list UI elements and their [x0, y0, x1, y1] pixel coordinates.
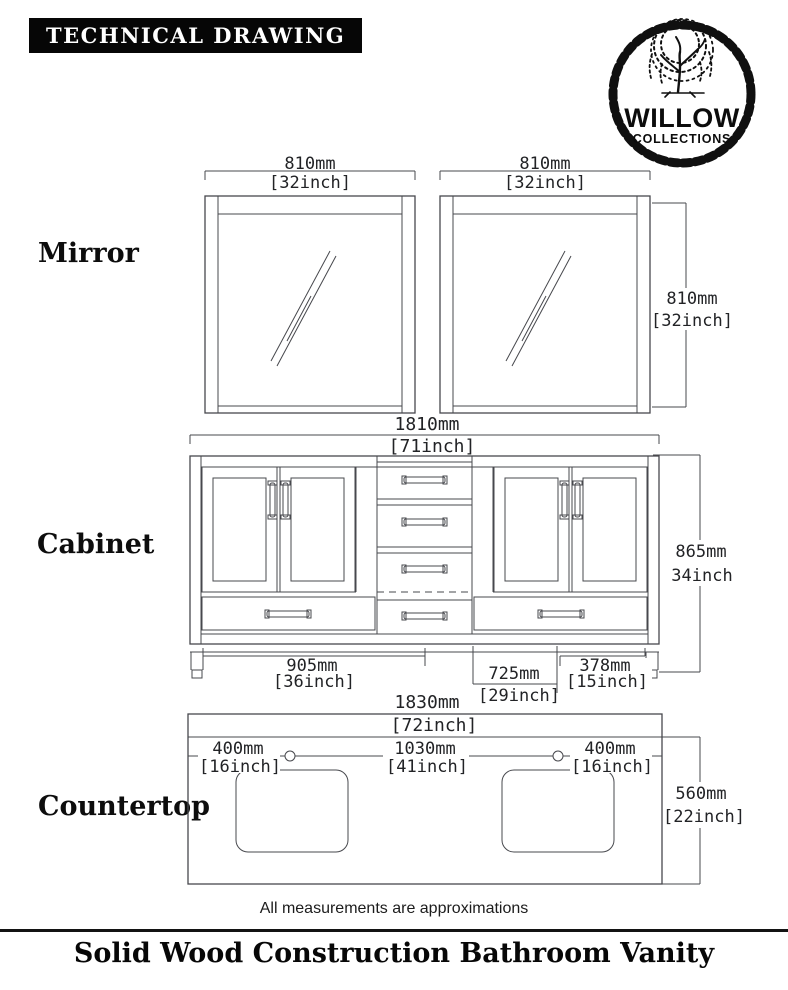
drawer-handle — [402, 612, 447, 620]
cabinet-door-right-1 — [494, 467, 569, 592]
dim-text-cabinet-height-in: 34inch — [671, 566, 732, 586]
dim-cabinet-height: 865mm 34inch — [653, 455, 734, 672]
dim-text-countertop-center-in: [41inch] — [386, 757, 468, 777]
dim-text-mirror-left-mm: 810mm — [284, 154, 335, 174]
countertop-drawing: 400mm [16inch] 1030mm [41inch] 400mm [16… — [188, 714, 662, 884]
cabinet-door-right-2 — [572, 467, 647, 592]
dim-text-countertop-left-mm: 400mm — [212, 739, 263, 759]
dim-text-mirror-height-mm: 810mm — [666, 289, 717, 309]
cabinet-door-left-2 — [280, 467, 355, 592]
dim-text-countertop-right-in: [16inch] — [571, 757, 653, 777]
dim-text-mirror-left-in: [32inch] — [269, 173, 351, 193]
drawer-handle — [265, 610, 311, 618]
footer-divider — [0, 929, 788, 932]
dim-text-mirror-right-in: [32inch] — [504, 173, 586, 193]
drawer-handle — [402, 518, 447, 526]
dim-text-cabinet-right-in: [15inch] — [566, 672, 648, 692]
dim-text-cabinet-left-in: [36inch] — [273, 672, 355, 692]
dim-text-countertop-left-in: [16inch] — [199, 757, 281, 777]
dim-cabinet-center: 725mm [29inch] — [473, 646, 560, 706]
dim-mirror-height: 810mm [32inch] — [651, 203, 733, 407]
dim-text-countertop-width-in: [72inch] — [391, 715, 478, 736]
dim-text-cabinet-center-in: [29inch] — [478, 686, 560, 706]
dim-text-mirror-right-mm: 810mm — [519, 154, 570, 174]
faucet-hole-right — [553, 751, 563, 761]
dim-text-countertop-depth-mm: 560mm — [675, 784, 726, 804]
mirror-drawing-left — [205, 196, 415, 413]
drawer-handle — [538, 610, 584, 618]
faucet-hole-left — [285, 751, 295, 761]
drawer-handle — [402, 476, 447, 484]
measurements-note: All measurements are approximations — [0, 900, 788, 918]
dim-cabinet-right: 378mm [15inch] — [560, 648, 652, 692]
dim-text-countertop-depth-in: [22inch] — [663, 807, 745, 827]
dim-text-mirror-height-in: [32inch] — [651, 311, 733, 331]
cabinet-door-left-1 — [202, 467, 277, 592]
dim-text-cabinet-width-in: [71inch] — [389, 436, 476, 457]
dim-mirror-right-width: 810mm [32inch] — [440, 154, 650, 193]
dim-text-cabinet-height-mm: 865mm — [675, 542, 726, 562]
mirror-glass-slashes — [271, 251, 336, 366]
cabinet-center-drawers — [377, 462, 472, 620]
dim-mirror-left-width: 810mm [32inch] — [205, 154, 415, 193]
sink-basin-right — [502, 770, 614, 852]
vanity-technical-drawing: 810mm [32inch] 810mm [32inch] 810mm [32i… — [0, 0, 788, 990]
dim-text-countertop-width-mm: 1830mm — [394, 692, 459, 713]
mirror-drawing-right — [440, 196, 650, 413]
dim-text-countertop-right-mm: 400mm — [584, 739, 635, 759]
door-handles — [268, 481, 582, 519]
dim-text-cabinet-width-mm: 1810mm — [394, 414, 459, 435]
dim-text-cabinet-center-mm: 725mm — [488, 664, 539, 684]
dim-countertop-center: 1030mm [41inch] — [383, 739, 469, 777]
cabinet-drawing — [190, 456, 659, 678]
dim-cabinet-width: 1810mm [71inch] — [190, 414, 659, 457]
drawer-handle — [402, 565, 447, 573]
dim-countertop-left: 400mm [16inch] — [198, 739, 281, 777]
dim-text-countertop-center-mm: 1030mm — [394, 739, 455, 759]
product-title: Solid Wood Construction Bathroom Vanity — [0, 938, 788, 969]
sink-basin-left — [236, 770, 348, 852]
dim-cabinet-left: 905mm [36inch] — [203, 648, 425, 692]
dim-countertop-depth: 560mm [22inch] — [662, 737, 745, 884]
technical-drawing-page: TECHNICAL DRAWING Mirror Cabinet Counter… — [0, 0, 788, 990]
mirror-glass-slashes — [506, 251, 571, 366]
dim-countertop-right: 400mm [16inch] — [570, 739, 653, 777]
